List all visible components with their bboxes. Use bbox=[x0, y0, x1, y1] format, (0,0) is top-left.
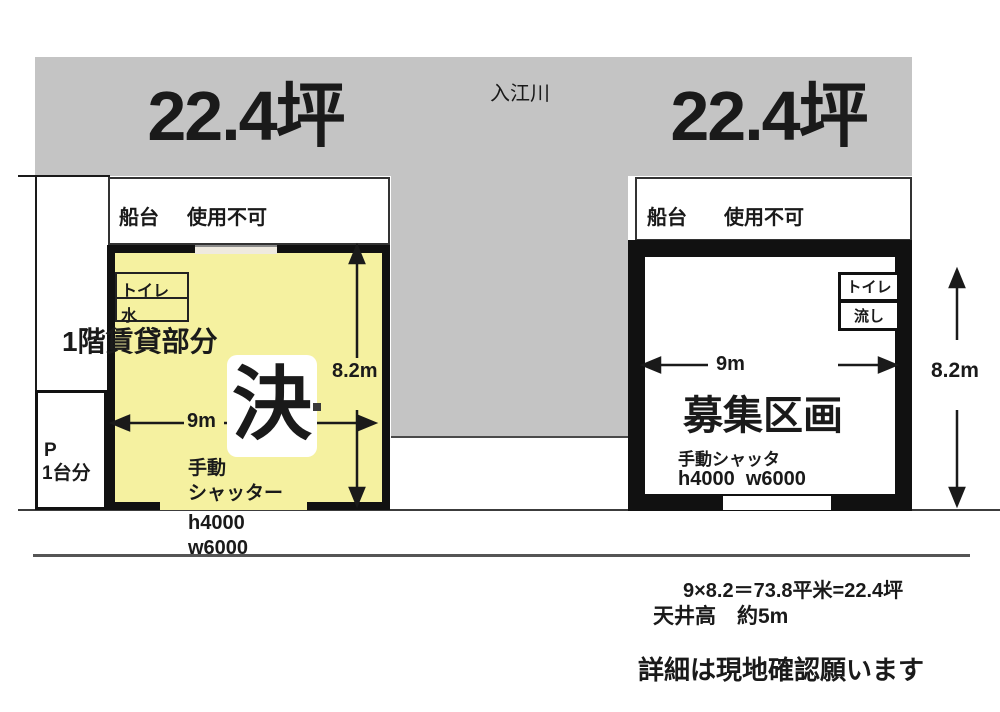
area-size-left: 22.4坪 bbox=[133, 70, 358, 162]
shutter-note-left-line2: シャッター bbox=[188, 481, 283, 506]
sink-box-right: 流し bbox=[838, 300, 900, 331]
height-dim-right: 8.2m bbox=[931, 359, 979, 383]
width-dim-right: 9m bbox=[716, 353, 745, 376]
dock-status-left: 使用不可 bbox=[187, 201, 267, 230]
parking-label-count: 1台分 bbox=[42, 462, 91, 485]
arrowhead-down-right bbox=[950, 488, 964, 505]
shutter-height-left: h4000 bbox=[188, 511, 248, 536]
shutter-note-right: 手動シャッタ bbox=[678, 445, 780, 470]
ceiling-height: 天井高 約5m bbox=[653, 600, 788, 630]
vacancy-label: 募集区画 bbox=[683, 383, 843, 441]
toilet-box-right: トイレ bbox=[838, 272, 900, 302]
area-calculation: 9×8.2＝73.8平米=22.4坪 bbox=[683, 574, 903, 603]
height-dim-left: 8.2m bbox=[332, 360, 378, 383]
dock-label-right: 船台 bbox=[647, 201, 687, 230]
shutter-size-left: h4000 w6000 bbox=[188, 511, 248, 561]
middle-yard bbox=[391, 176, 628, 438]
toilet-box-left: トイレ bbox=[115, 272, 189, 299]
dock-label-left: 船台 bbox=[119, 201, 159, 230]
floor-rental-label: 1階賃貸部分 bbox=[62, 320, 218, 360]
unit-right-shutter-opening bbox=[723, 496, 831, 510]
shutter-note-left: 手動 シャッター bbox=[188, 456, 283, 506]
river-name: 入江川 bbox=[478, 82, 562, 106]
site-confirmation-note: 詳細は現地確認願います bbox=[638, 650, 924, 687]
dock-strip-right: 船台 使用不可 bbox=[635, 177, 912, 241]
water-box-left: 水 bbox=[115, 297, 189, 322]
dock-strip-left: 船台 使用不可 bbox=[108, 177, 390, 245]
parking-box: P 1台分 bbox=[35, 390, 107, 510]
arrowhead-up-right bbox=[950, 270, 964, 287]
floor-plan-canvas: 22.4坪 入江川 22.4坪 船台 使用不可 トイレ 水 1階賃貸部分 P 1… bbox=[0, 0, 1000, 712]
toilet-label-right: トイレ bbox=[846, 279, 891, 296]
road-line bbox=[33, 554, 970, 557]
area-size-right: 22.4坪 bbox=[656, 70, 881, 162]
unit-left-top-opening bbox=[195, 245, 277, 254]
width-dim-left: 9m bbox=[187, 410, 216, 433]
sold-stamp-dash bbox=[313, 403, 321, 411]
sold-kanji: 決 bbox=[227, 355, 317, 455]
sink-label-right: 流し bbox=[854, 308, 884, 325]
shutter-width-left: w6000 bbox=[188, 536, 248, 561]
parking-label-p: P bbox=[44, 439, 57, 462]
sold-stamp: 決 bbox=[227, 355, 317, 457]
shutter-note-left-line1: 手動 bbox=[188, 456, 283, 481]
dock-status-right: 使用不可 bbox=[724, 201, 804, 230]
shutter-size-right: h4000 w6000 bbox=[678, 468, 806, 491]
